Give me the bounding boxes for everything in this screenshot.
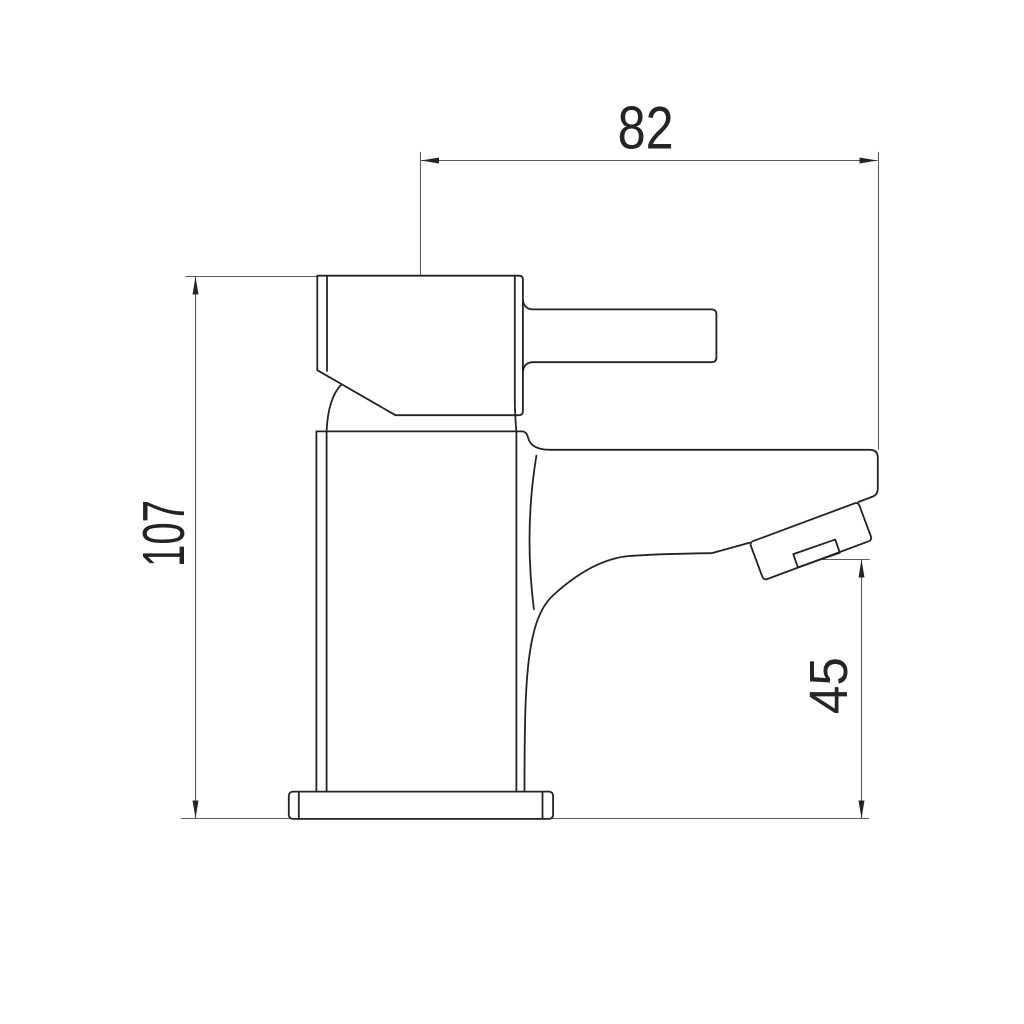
svg-text:82: 82 (618, 95, 674, 162)
svg-text:107: 107 (131, 500, 197, 567)
svg-text:45: 45 (799, 657, 859, 714)
